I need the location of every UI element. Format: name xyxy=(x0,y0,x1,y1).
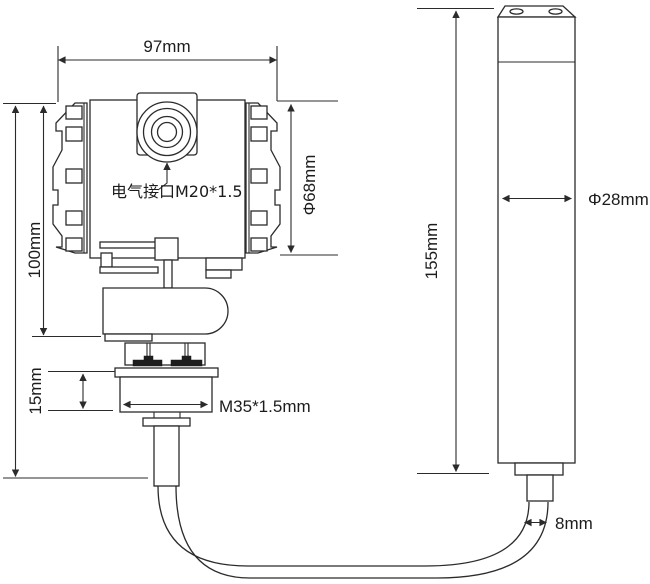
bracket-block-center xyxy=(155,238,178,260)
probe-bottom-step xyxy=(515,463,563,475)
left-end-cap xyxy=(53,103,87,253)
dimension-155mm: 155mm xyxy=(417,9,494,474)
label-top-width: 97mm xyxy=(143,37,190,56)
label-probe-length: 155mm xyxy=(422,223,441,280)
bracket-step-right-1 xyxy=(206,258,242,270)
dimension-68mm: Φ68mm xyxy=(277,101,338,255)
label-left-height: 100mm xyxy=(25,222,44,279)
process-connection xyxy=(100,238,242,486)
dimension-drawing: 97mm 100mm 15mm M35*1.5mm Φ68mm xyxy=(0,0,650,584)
cable xyxy=(158,486,548,578)
dimension-8mm: 8mm xyxy=(525,514,593,533)
dimension-15mm: 15mm xyxy=(26,367,115,414)
bracket-bar-top xyxy=(100,242,158,248)
label-head-diameter: Φ68mm xyxy=(300,155,319,216)
seal-bar-right xyxy=(171,360,202,366)
label-probe-diameter: Φ28mm xyxy=(588,190,649,209)
rounded-connection-block xyxy=(103,288,228,334)
bracket-post xyxy=(164,260,172,288)
seal-bar-left xyxy=(133,360,162,366)
electrical-port-circles xyxy=(137,102,197,162)
right-end-cap xyxy=(246,103,280,253)
probe-cable-neck xyxy=(527,475,553,501)
stem-tube xyxy=(154,426,179,486)
label-nut-thickness: 15mm xyxy=(26,367,45,414)
under-plate xyxy=(105,334,152,341)
label-thread-spec: M35*1.5mm xyxy=(219,397,311,416)
label-cable-diameter: 8mm xyxy=(555,514,593,533)
label-electrical-interface: 电气接口M20*1.5 xyxy=(111,182,243,201)
probe-body xyxy=(498,17,575,463)
lock-nut xyxy=(120,377,212,412)
transmitter-assembly xyxy=(53,93,280,486)
collar xyxy=(143,418,190,426)
bracket-block-left xyxy=(101,253,112,267)
flange-plate xyxy=(115,368,218,377)
bracket-step-right-2 xyxy=(206,270,231,278)
probe-assembly xyxy=(498,6,575,501)
bracket-bar-bottom xyxy=(100,267,158,273)
